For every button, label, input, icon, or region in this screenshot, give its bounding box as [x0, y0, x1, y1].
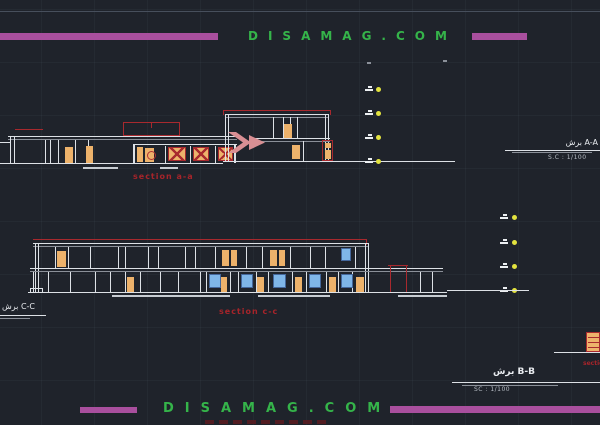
grid-speck — [367, 62, 371, 64]
column-line — [125, 247, 126, 268]
door-x-panel — [168, 147, 186, 161]
column-line — [230, 272, 231, 292]
level-marker-icon — [365, 86, 383, 93]
column-line — [246, 247, 247, 268]
title-underline — [505, 150, 600, 151]
red-frame-line — [388, 265, 408, 266]
roof-edge-red — [33, 239, 367, 240]
door-fill — [270, 250, 277, 266]
window-fill — [209, 274, 221, 288]
roof-line — [225, 114, 329, 115]
column-line — [215, 146, 216, 163]
window-fill — [273, 274, 286, 288]
section-cc-label: section c-c — [219, 307, 278, 316]
column-line — [200, 272, 201, 292]
watermark-top: DISAMAG.COM — [248, 29, 457, 43]
column-line — [297, 117, 298, 139]
title-bb-scale: SC : 1/100 — [474, 386, 510, 393]
column-line — [303, 141, 304, 161]
door-fill — [292, 145, 300, 159]
roof-edge-red — [223, 110, 331, 111]
door-fill — [325, 150, 331, 159]
level-marker-icon — [365, 134, 383, 141]
door-fill — [295, 277, 302, 292]
level-marker-icon — [500, 214, 518, 221]
window-fill — [341, 248, 351, 261]
level-marker-icon — [365, 158, 383, 165]
level-line — [447, 290, 529, 291]
level-marker-icon — [500, 263, 518, 270]
door-x-panel — [193, 147, 209, 161]
footing-line — [160, 167, 178, 169]
door-fill — [57, 251, 66, 267]
column-line — [195, 247, 196, 268]
column-line — [338, 272, 339, 292]
title-aa-text: برش A-A — [542, 138, 598, 147]
column-line — [70, 272, 71, 292]
door-louver-line — [588, 347, 599, 348]
ground-line — [223, 161, 455, 162]
door-fill — [127, 277, 134, 292]
column-line — [190, 146, 191, 163]
roof-edge-red — [366, 239, 367, 245]
wall-line — [14, 136, 15, 163]
door-fill — [284, 124, 292, 138]
door-fill — [329, 277, 336, 292]
roof-line — [8, 139, 237, 140]
window-fill — [309, 274, 321, 288]
wall-line — [225, 114, 226, 161]
column-line — [110, 272, 111, 292]
column-line — [292, 272, 293, 292]
parapet-divider — [151, 123, 152, 128]
window-fill — [241, 274, 253, 288]
magenta-bar-bottom-right — [390, 406, 600, 413]
column-line — [95, 272, 96, 292]
title-underline — [452, 382, 600, 383]
door-fill — [221, 277, 227, 292]
column-line — [268, 272, 269, 292]
parapet-line — [15, 129, 43, 130]
ground-line — [28, 292, 447, 293]
title-underline — [512, 152, 592, 153]
top-rule-line — [0, 11, 600, 12]
column-line — [238, 272, 239, 292]
door-louver-line — [588, 342, 599, 343]
door-fill — [356, 277, 364, 292]
column-line — [306, 272, 307, 292]
porch-column-line — [432, 272, 433, 292]
column-line — [206, 272, 207, 292]
magenta-bar-top-right — [472, 33, 527, 40]
ground-line — [554, 352, 600, 353]
column-line — [45, 140, 46, 163]
title-underline — [0, 315, 46, 316]
column-line — [185, 247, 186, 268]
red-frame-line — [390, 266, 391, 293]
column-line — [68, 247, 69, 268]
footing-box — [30, 288, 43, 293]
door-section-cutoff — [586, 332, 600, 352]
column-line — [125, 272, 126, 292]
column-line — [118, 247, 119, 268]
slab-line — [30, 268, 443, 269]
roof-line — [33, 243, 368, 244]
door-fill — [222, 250, 229, 266]
magenta-bar-top-left — [0, 33, 218, 40]
column-line — [273, 117, 274, 139]
column-line — [148, 247, 149, 268]
column-line — [215, 247, 216, 268]
column-line — [140, 272, 141, 292]
column-line — [326, 272, 327, 292]
footing-line — [258, 295, 330, 297]
column-line — [290, 247, 291, 268]
column-line — [262, 247, 263, 268]
column-line — [325, 247, 326, 268]
column-line — [178, 272, 179, 292]
column-line — [58, 140, 59, 163]
door-fill — [86, 146, 93, 163]
title-cc-text: برش C-C — [2, 302, 35, 311]
cad-canvas[interactable]: DISAMAG.COM — [0, 0, 600, 425]
wall-line — [10, 136, 11, 163]
roof-line — [225, 117, 329, 118]
column-line — [55, 247, 56, 268]
column-line — [75, 140, 76, 163]
section-aa-label: section a-a — [133, 172, 194, 181]
door-louver-line — [588, 337, 599, 338]
column-line — [310, 247, 311, 268]
grid-speck — [443, 60, 447, 62]
title-bb-text: برش B-B — [480, 367, 548, 377]
column-line — [355, 247, 356, 268]
slab-line — [30, 271, 443, 272]
column-line — [48, 272, 49, 292]
column-line — [90, 247, 91, 268]
door-fill — [65, 147, 73, 163]
column-line — [50, 140, 51, 163]
door-fill — [137, 147, 143, 162]
watermark-bottom: DISAMAG.COM — [163, 401, 391, 416]
door-swing-symbol — [147, 151, 156, 160]
roof-line — [33, 246, 368, 247]
lintel-line — [133, 144, 237, 145]
level-marker-icon — [500, 239, 518, 246]
wall-line — [0, 142, 10, 143]
ground-line — [0, 163, 223, 164]
magenta-bar-bottom-left — [80, 407, 137, 413]
roof-edge-red — [223, 110, 224, 115]
door-fill — [231, 250, 237, 266]
column-line — [158, 247, 159, 268]
title-underline — [0, 318, 30, 319]
parapet-outline — [123, 122, 180, 136]
section-bb-label-cutoff: section b-b — [583, 360, 600, 367]
footing-line — [398, 295, 447, 297]
roof-edge-red — [330, 110, 331, 115]
column-line — [160, 272, 161, 292]
door-fill — [325, 143, 331, 148]
door-fill — [257, 277, 264, 292]
column-section-red — [322, 140, 333, 161]
porch-column-line — [420, 272, 421, 292]
level-marker-icon — [365, 110, 383, 117]
roof-line — [8, 136, 237, 137]
column-line — [133, 144, 135, 163]
footing-line — [83, 167, 118, 169]
title-aa-scale: S.C : 1/100 — [548, 154, 587, 161]
stair-direction-arrow-icon — [227, 129, 267, 156]
footing-line — [112, 295, 230, 297]
cutoff-text-strip — [205, 420, 331, 424]
window-fill — [341, 274, 353, 288]
column-line — [165, 146, 166, 163]
red-frame-line — [406, 266, 407, 293]
door-fill — [279, 250, 285, 266]
